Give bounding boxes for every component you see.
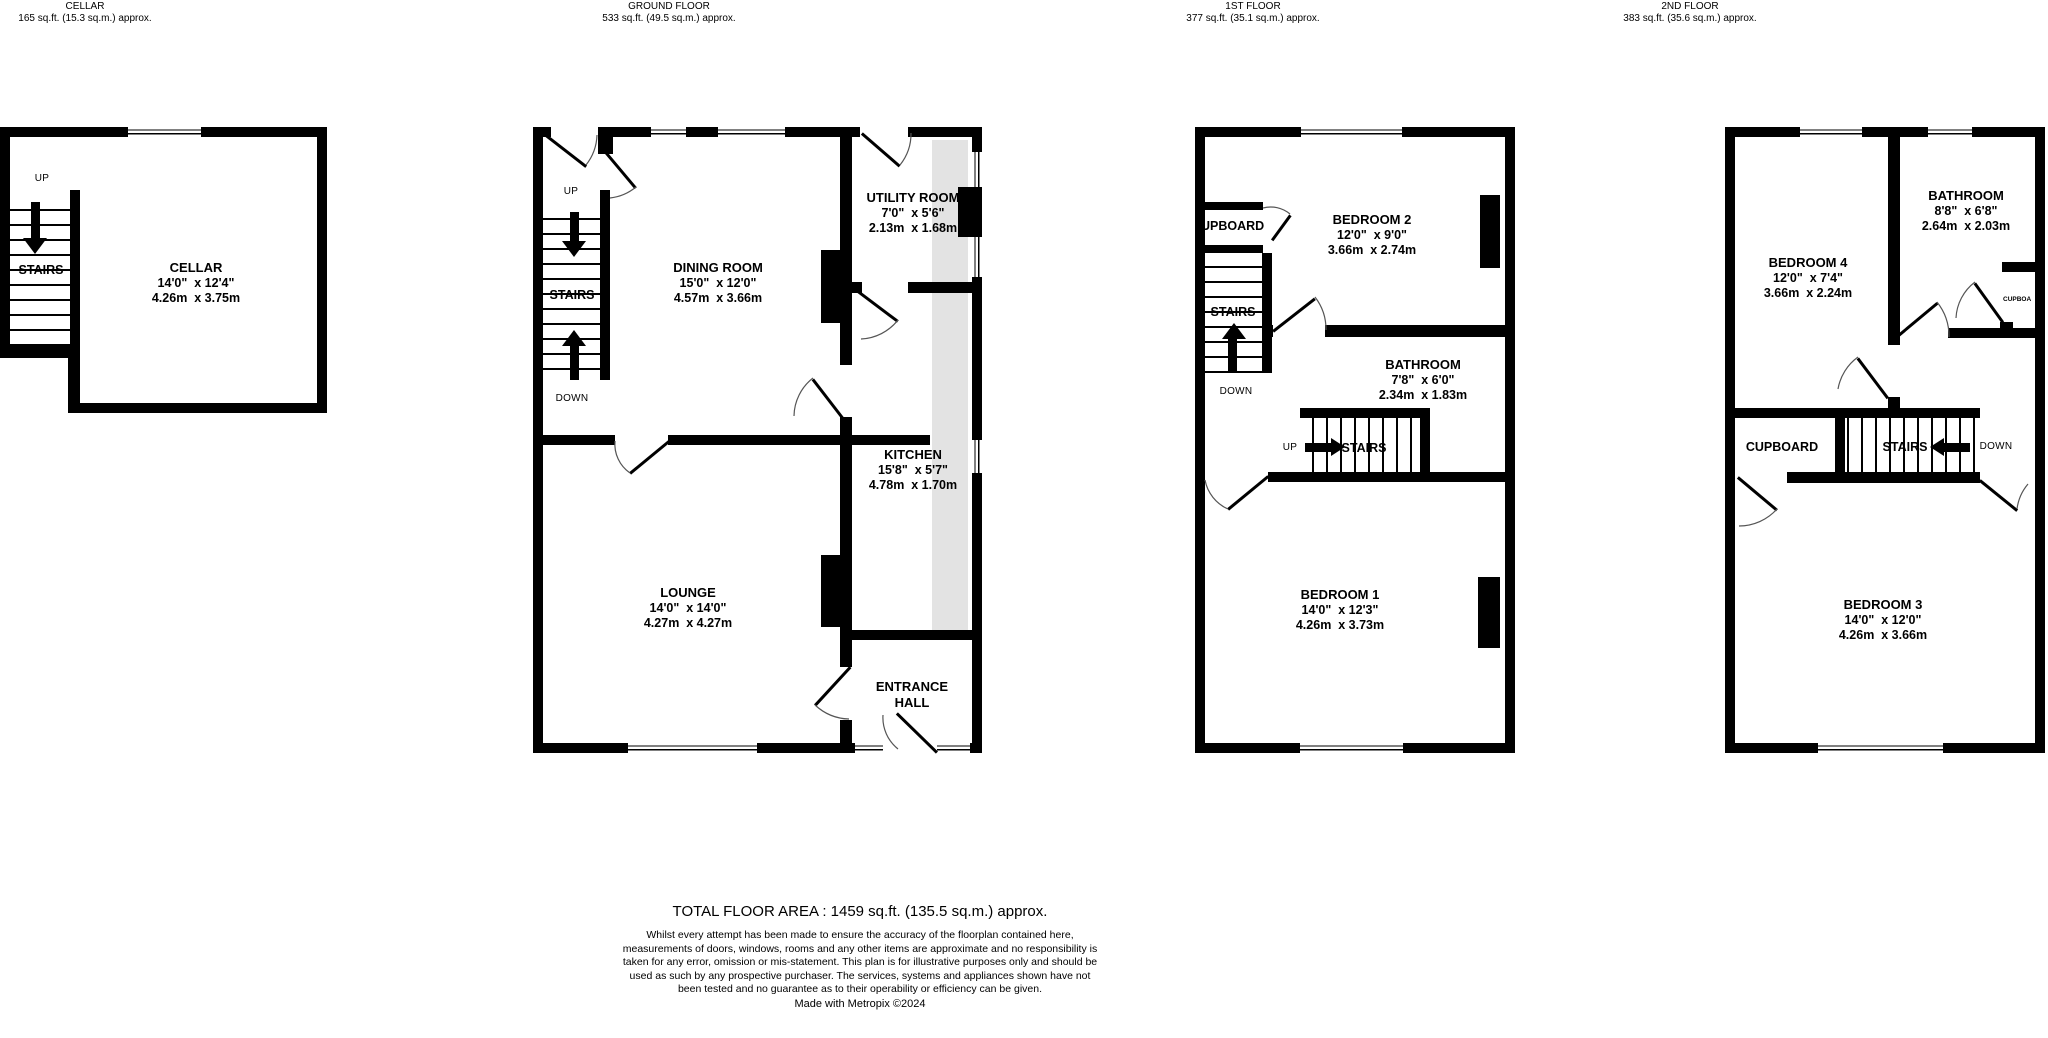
wall <box>2002 262 2035 272</box>
floor-title: 2ND FLOOR <box>1605 1 1775 13</box>
chimney-breast <box>1478 577 1500 648</box>
stairs-label: STAIRS <box>5 263 77 277</box>
room-dim-m: 2.64m x 2.03m <box>1866 219 2048 234</box>
room-label-kitchen: KITCHEN 15'8" x 5'7" 4.78m x 1.70m <box>818 447 1008 493</box>
room-dim-m: 4.26m x 3.73m <box>1240 618 1440 633</box>
cupboard-small-label: CUPBOA <box>2003 296 2035 303</box>
plan-ground-floor: UP STAIRS DOWN DINING ROOM 15'0" x 12'0"… <box>533 127 982 753</box>
room-dim-ft: 12'0" x 9'0" <box>1272 228 1472 243</box>
room-dim-ft: 8'8" x 6'8" <box>1866 204 2048 219</box>
window <box>855 743 883 753</box>
room-dim-ft: 15'8" x 5'7" <box>818 463 1008 478</box>
wall <box>600 190 610 380</box>
room-dim-ft: 15'0" x 12'0" <box>618 276 818 291</box>
room-dim-ft: 14'0" x 14'0" <box>588 601 788 616</box>
room-label-bedroom-3: BEDROOM 3 14'0" x 12'0" 4.26m x 3.66m <box>1783 597 1983 643</box>
wall <box>840 417 852 445</box>
wall <box>1268 472 1505 482</box>
door-leaf <box>1272 298 1315 333</box>
floor-area: 165 sq.ft. (15.3 sq.m.) approx. <box>0 13 170 25</box>
floor-header-ground: GROUND FLOOR 533 sq.ft. (49.5 sq.m.) app… <box>584 1 754 25</box>
wall <box>1325 325 1505 337</box>
plan-second-floor: CUPBOARD STAIRS DOWN CUPBOA BEDROOM 4 12… <box>1725 127 2045 753</box>
room-dim-m: 3.66m x 2.74m <box>1272 243 1472 258</box>
room-dim-ft: 12'0" x 7'4" <box>1725 271 1891 286</box>
room-name: BATHROOM <box>1866 188 2048 204</box>
room-label-cellar: CELLAR 14'0" x 12'4" 4.26m x 3.75m <box>96 260 296 306</box>
arrow-shaft <box>570 212 579 242</box>
wall <box>840 323 852 365</box>
room-name: LOUNGE <box>588 585 788 601</box>
door-leaf <box>629 439 671 474</box>
up-label: UP <box>556 186 586 197</box>
floor-area: 533 sq.ft. (49.5 sq.m.) approx. <box>584 13 754 25</box>
room-name: DINING ROOM <box>618 260 818 276</box>
window <box>128 127 201 137</box>
door-leaf <box>1894 302 1938 339</box>
arrow-up-icon <box>562 330 586 346</box>
room-dim-m: 4.78m x 1.70m <box>818 478 1008 493</box>
room-dim-ft: 14'0" x 12'0" <box>1783 613 1983 628</box>
up-label: UP <box>27 173 57 184</box>
room-dim-ft: 14'0" x 12'3" <box>1240 603 1440 618</box>
window <box>1800 127 1862 137</box>
cupboard-label: UPBOARD <box>1201 219 1263 233</box>
wall <box>1787 472 1980 483</box>
arrow-shaft <box>570 346 579 380</box>
window <box>651 127 686 137</box>
door-leaf <box>1737 476 1778 511</box>
wall <box>1725 127 2045 137</box>
arrow-down-icon <box>23 238 47 254</box>
room-name: BATHROOM <box>1323 357 1523 373</box>
window <box>937 743 970 753</box>
room-name: BEDROOM 1 <box>1240 587 1440 603</box>
door-leaf <box>814 666 851 706</box>
door-leaf <box>1857 358 1889 400</box>
room-dim-m: 4.57m x 3.66m <box>618 291 818 306</box>
room-name: KITCHEN <box>818 447 1008 463</box>
floor-title: CELLAR <box>0 1 170 13</box>
metropix-credit: Made with Metropix ©2024 <box>460 998 1260 1010</box>
wall <box>68 345 80 413</box>
room-label-bathroom: BATHROOM 8'8" x 6'8" 2.64m x 2.03m <box>1866 188 2048 234</box>
down-label: DOWN <box>547 393 597 404</box>
door-opening <box>551 127 598 137</box>
arrow-shaft <box>31 202 40 240</box>
room-label-utility-room: UTILITY ROOM 7'0" x 5'6" 2.13m x 1.68m <box>818 190 1008 236</box>
wall <box>668 435 930 445</box>
room-name: CELLAR <box>96 260 296 276</box>
arrow-down-icon <box>562 241 586 257</box>
wall <box>1262 325 1273 337</box>
door-leaf <box>1227 475 1269 510</box>
floor-area: 383 sq.ft. (35.6 sq.m.) approx. <box>1605 13 1775 25</box>
room-label-lounge: LOUNGE 14'0" x 14'0" 4.27m x 4.27m <box>588 585 788 631</box>
window <box>1818 743 1943 753</box>
room-dim-m: 3.66m x 2.24m <box>1725 286 1891 301</box>
room-name: BEDROOM 3 <box>1783 597 1983 613</box>
door-leaf <box>857 290 899 322</box>
room-dim-ft: 7'0" x 5'6" <box>818 206 1008 221</box>
window <box>1928 127 1972 137</box>
wall <box>840 720 852 753</box>
wall <box>1262 253 1272 373</box>
room-dim-m: 2.13m x 1.68m <box>818 221 1008 236</box>
wall <box>1505 127 1515 753</box>
cupboard-label: CUPBOARD <box>1733 440 1831 454</box>
total-floor-area: TOTAL FLOOR AREA : 1459 sq.ft. (135.5 sq… <box>460 903 1260 920</box>
arrow-shaft <box>1944 443 1970 452</box>
room-dim-m: 4.26m x 3.66m <box>1783 628 1983 643</box>
stairs-label: STAIRS <box>1334 441 1394 455</box>
down-label: DOWN <box>1211 386 1261 397</box>
door-leaf <box>1979 479 2018 511</box>
door-leaf <box>812 379 844 419</box>
footer: TOTAL FLOOR AREA : 1459 sq.ft. (135.5 sq… <box>460 903 1260 1010</box>
room-name: UTILITY ROOM <box>818 190 1008 206</box>
room-dim-ft: 7'8" x 6'0" <box>1323 373 1523 388</box>
wall <box>1733 408 1980 418</box>
floor-title: 1ST FLOOR <box>1168 1 1338 13</box>
room-label-bedroom-4: BEDROOM 4 12'0" x 7'4" 3.66m x 2.24m <box>1725 255 1891 301</box>
window <box>1301 127 1402 137</box>
arrow-up-icon <box>1222 323 1246 339</box>
chimney-breast <box>821 250 852 323</box>
chimney-breast <box>821 555 852 627</box>
room-name: BEDROOM 2 <box>1272 212 1472 228</box>
room-dim-ft: 14'0" x 12'4" <box>96 276 296 291</box>
wall <box>0 127 10 358</box>
stairs-label: STAIRS <box>1203 305 1263 319</box>
wall <box>840 627 852 667</box>
room-label-dining-room: DINING ROOM 15'0" x 12'0" 4.57m x 3.66m <box>618 260 818 306</box>
room-label-entrance-hall: ENTRANCE HALL <box>867 679 957 711</box>
door-leaf <box>604 150 637 188</box>
wall <box>2000 322 2013 338</box>
wall <box>1202 245 1263 253</box>
window <box>972 237 982 277</box>
floorplan-canvas: CELLAR 165 sq.ft. (15.3 sq.m.) approx. G… <box>0 0 2048 1038</box>
up-label: UP <box>1278 442 1302 453</box>
floor-header-cellar: CELLAR 165 sq.ft. (15.3 sq.m.) approx. <box>0 1 170 25</box>
room-dim-m: 4.26m x 3.75m <box>96 291 296 306</box>
disclaimer-text: Whilst every attempt has been made to en… <box>617 929 1103 997</box>
wall <box>1202 202 1263 210</box>
wall <box>1888 137 1900 345</box>
wall <box>1420 408 1430 482</box>
room-label-bedroom-2: BEDROOM 2 12'0" x 9'0" 3.66m x 2.74m <box>1272 212 1472 258</box>
wall <box>908 282 982 293</box>
wall <box>317 127 327 413</box>
window <box>1300 743 1403 753</box>
room-name: BEDROOM 4 <box>1725 255 1891 271</box>
wall <box>533 127 543 753</box>
door-leaf <box>861 132 900 167</box>
room-name: ENTRANCE HALL <box>867 679 957 711</box>
stairs-label: STAIRS <box>1875 440 1935 454</box>
plan-cellar: UP STAIRS CELLAR 14'0" x 12'4" 4.26m x 3… <box>0 127 327 413</box>
floor-header-first: 1ST FLOOR 377 sq.ft. (35.1 sq.m.) approx… <box>1168 1 1338 25</box>
door-leaf <box>545 134 587 167</box>
window <box>628 743 757 753</box>
plan-first-floor: UPBOARD STAIRS DOWN UP STAIRS BEDROOM 2 … <box>1195 127 1515 753</box>
window <box>972 152 982 187</box>
room-label-bathroom: BATHROOM 7'8" x 6'0" 2.34m x 1.83m <box>1323 357 1523 403</box>
arrow-shaft <box>1228 339 1237 373</box>
door-leaf <box>1974 283 2004 323</box>
room-dim-m: 2.34m x 1.83m <box>1323 388 1523 403</box>
arrow-shaft <box>1305 443 1331 452</box>
wall <box>852 630 982 640</box>
chimney-breast <box>1480 195 1500 268</box>
floor-title: GROUND FLOOR <box>584 1 754 13</box>
wall <box>543 435 615 445</box>
room-dim-m: 4.27m x 4.27m <box>588 616 788 631</box>
wall <box>68 403 327 413</box>
down-label: DOWN <box>1976 441 2016 452</box>
stairs-label: STAIRS <box>541 288 603 302</box>
floor-area: 377 sq.ft. (35.1 sq.m.) approx. <box>1168 13 1338 25</box>
wall <box>1948 328 2035 338</box>
room-label-bedroom-1: BEDROOM 1 14'0" x 12'3" 4.26m x 3.73m <box>1240 587 1440 633</box>
window <box>718 127 785 137</box>
wall <box>1300 408 1420 418</box>
floor-header-second: 2ND FLOOR 383 sq.ft. (35.6 sq.m.) approx… <box>1605 1 1775 25</box>
